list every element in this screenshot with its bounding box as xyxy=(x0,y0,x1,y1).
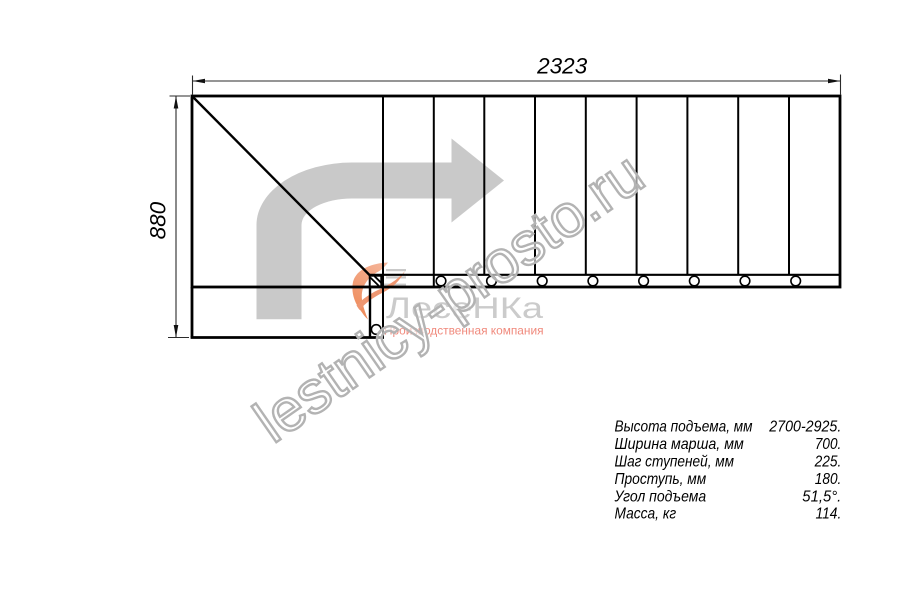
svg-text:225.: 225. xyxy=(814,454,842,471)
svg-text:51,5°.: 51,5°. xyxy=(802,488,841,505)
svg-text:700.: 700. xyxy=(815,436,841,453)
svg-text:880: 880 xyxy=(146,201,171,239)
svg-text:Проступь, мм: Проступь, мм xyxy=(615,471,707,488)
svg-text:2700-2925.: 2700-2925. xyxy=(768,419,841,436)
svg-text:Шаг ступеней, мм: Шаг ступеней, мм xyxy=(615,454,735,471)
svg-text:180.: 180. xyxy=(815,471,842,488)
svg-text:Высота подъема, мм: Высота подъема, мм xyxy=(615,419,753,436)
svg-text:Масса, кг: Масса, кг xyxy=(615,506,677,523)
svg-text:2323: 2323 xyxy=(536,53,588,78)
svg-text:Ширина марша, мм: Ширина марша, мм xyxy=(615,436,744,453)
svg-text:Угол подъема: Угол подъема xyxy=(614,488,707,505)
svg-text:114.: 114. xyxy=(816,506,842,523)
